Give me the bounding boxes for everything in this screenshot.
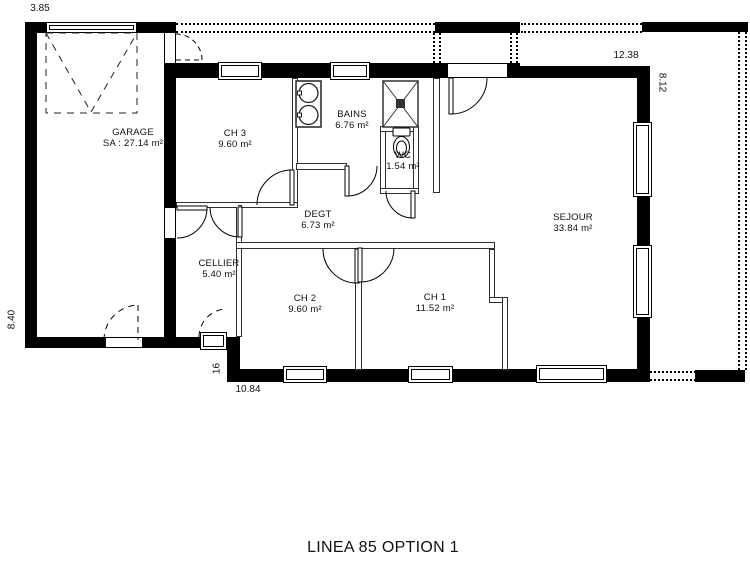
ch2-door-arc xyxy=(323,249,357,283)
ch3-door-arc xyxy=(257,170,292,205)
room-name: CH 2 xyxy=(255,293,355,304)
room-area: 6.76 m² xyxy=(312,120,392,131)
room-name: CELLIER xyxy=(169,258,269,269)
porch-edge-left xyxy=(433,33,441,63)
room-label-ch2: CH 2 9.60 m² xyxy=(255,293,355,315)
dimension-garage-width: 3.85 xyxy=(20,3,60,14)
window-ch3 xyxy=(218,62,262,80)
dimension-bottom-width: 10.84 xyxy=(218,384,278,395)
wall-garage-top-left xyxy=(25,22,46,33)
opening-garage-cellier-door xyxy=(165,208,175,238)
window-sejour-bay xyxy=(536,365,607,383)
dimension-top-right-width: 12.38 xyxy=(596,50,656,61)
opening-ch2-door xyxy=(324,243,356,248)
porch-edge-right xyxy=(510,33,518,63)
window-sejour-east-2 xyxy=(633,245,652,318)
room-area: 5.40 m² xyxy=(169,269,269,280)
roofline-front-porch xyxy=(176,23,435,33)
entry-door-leaf xyxy=(449,78,453,114)
wall-porch-pillar xyxy=(435,22,520,33)
bains-door-leaf xyxy=(345,166,349,196)
room-area: 9.60 m² xyxy=(195,139,275,150)
plan-title: LINEA 85 OPTION 1 xyxy=(275,539,491,557)
dimension-right-height: 8.12 xyxy=(657,61,668,105)
roofline-terrace-right xyxy=(738,32,747,370)
room-name: BAINS xyxy=(312,109,392,120)
room-label-sejour: SEJOUR 33.84 m² xyxy=(523,212,623,234)
wc-door-arc xyxy=(386,191,413,218)
room-name: WC xyxy=(363,150,443,161)
window-sejour-east-1 xyxy=(633,122,652,197)
wall-terrace-corner xyxy=(695,370,745,382)
floor-plan: GARAGE SA : 27.14 m² CH 3 9.60 m² BAINS … xyxy=(0,0,750,570)
wall-ch1-east-upper xyxy=(489,249,495,302)
roofline-terrace-bottom xyxy=(650,371,696,381)
dimension-left-height: 8.40 xyxy=(7,298,18,342)
window-ch1 xyxy=(408,366,453,383)
wall-bains-south xyxy=(296,163,347,170)
room-label-ch3: CH 3 9.60 m² xyxy=(195,128,275,150)
wall-ch3-east xyxy=(292,78,298,208)
window-ch2 xyxy=(283,366,327,383)
room-label-ch1: CH 1 11.52 m² xyxy=(385,292,485,314)
room-label-cellier: CELLIER 5.40 m² xyxy=(169,258,269,280)
window-bains xyxy=(330,62,370,80)
opening-porch-door xyxy=(165,33,175,63)
room-area: 6.73 m² xyxy=(268,220,368,231)
room-name: CH 1 xyxy=(385,292,485,303)
porch-door-arc xyxy=(176,34,202,60)
wall-ch2-ch1 xyxy=(355,249,362,370)
opening-ch3-door xyxy=(258,203,292,207)
wall-entry-west xyxy=(433,78,440,193)
room-label-degt: DEGT 6.73 m² xyxy=(268,209,368,231)
room-name: GARAGE xyxy=(85,127,181,138)
room-area: 11.52 m² xyxy=(385,303,485,314)
wall-roof-top-right xyxy=(642,22,748,32)
room-area: 1.54 m² xyxy=(363,161,443,172)
garage-door-icon xyxy=(46,33,137,113)
room-label-bains: BAINS 6.76 m² xyxy=(312,109,392,131)
window-garage-door-opening xyxy=(46,22,137,33)
garage-service-door-arc xyxy=(104,305,138,340)
room-name: SEJOUR xyxy=(523,212,623,223)
opening-wc-door xyxy=(386,189,413,193)
entry-door-arc xyxy=(451,78,487,114)
wall-sejour-north xyxy=(507,66,650,78)
opening-ch1-door xyxy=(360,243,394,248)
room-area: 9.60 m² xyxy=(255,304,355,315)
wall-right xyxy=(637,66,650,382)
room-area: SA : 27.14 m² xyxy=(85,138,181,149)
ch1-door-arc xyxy=(360,248,394,282)
wc-door-leaf xyxy=(411,191,415,218)
opening-entry-door xyxy=(448,64,507,77)
wall-garage-left xyxy=(25,22,37,348)
roofline-front-right xyxy=(521,23,642,33)
room-label-garage: GARAGE SA : 27.14 m² xyxy=(85,127,181,149)
room-name: DEGT xyxy=(268,209,368,220)
room-name: CH 3 xyxy=(195,128,275,139)
opening-garage-service-door xyxy=(106,338,142,347)
room-label-wc: WC 1.54 m² xyxy=(363,150,443,172)
opening-corridor-cellier-door xyxy=(208,203,238,207)
room-area: 33.84 m² xyxy=(523,223,623,234)
garage-cellier-door-arc xyxy=(177,208,207,238)
wall-ch1-east-lower xyxy=(502,297,508,370)
